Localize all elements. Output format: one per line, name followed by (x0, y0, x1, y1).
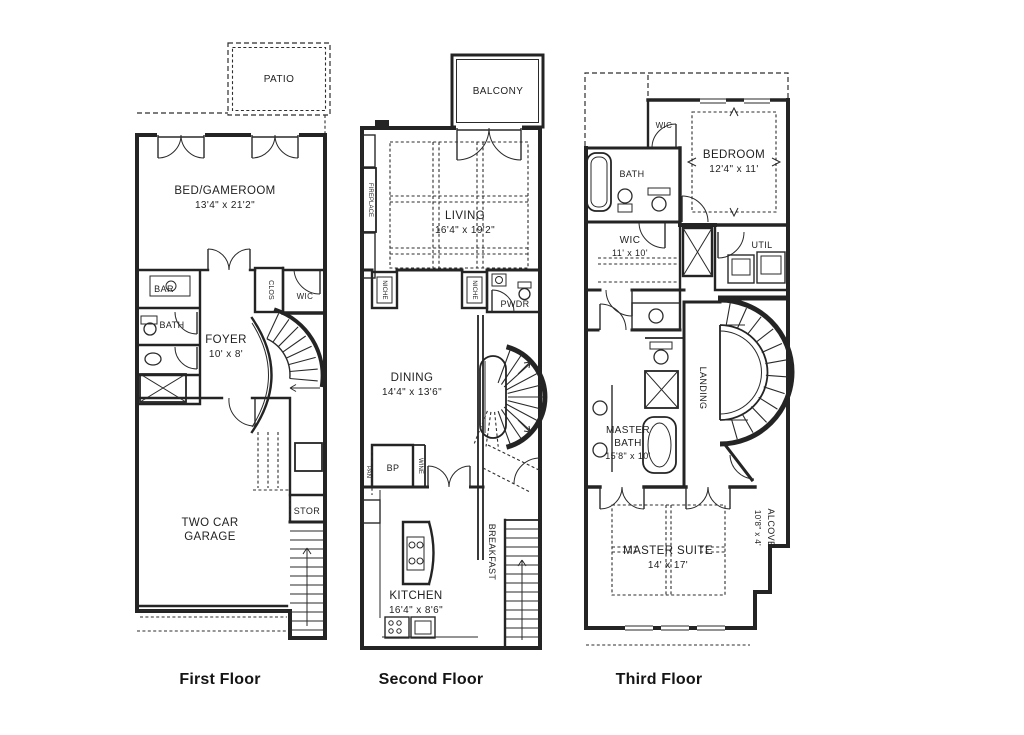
first-floor-straight-stair (290, 531, 325, 630)
wic-label-first: WIC (297, 292, 314, 301)
kitchen-dims: 16'4" x 8'6" (389, 605, 443, 616)
chimney (375, 120, 389, 129)
foyer-dims: 10' x 8' (209, 349, 243, 360)
first-floor-title: First Floor (179, 671, 260, 688)
third-floor-plan: WIC BATH BEDROOM 12'4" x 11' WIC 11' x 1… (585, 73, 792, 645)
second-floor-straight-stair (505, 520, 540, 648)
elevator (680, 225, 715, 276)
patio-label: PATIO (264, 74, 295, 85)
garage-label-line1: TWO CAR (181, 517, 238, 529)
third-floor-roof-dashes (585, 73, 788, 210)
clos-label: CLOS (267, 280, 274, 300)
foyer-label: FOYER (205, 334, 247, 346)
fireplace-label: FIREPLACE (367, 183, 373, 217)
niche-left-label: NICHE (381, 280, 387, 299)
second-floor-plan: BALCONY LIVING 16'4" x 19'2" FIREPLACE N… (362, 55, 545, 648)
third-floor-title: Third Floor (616, 671, 703, 688)
bed-gameroom-label: BED/GAMEROOM (174, 185, 275, 197)
second-floor-curved-stair (474, 315, 545, 560)
pwdr-label: PWDR (500, 299, 529, 309)
first-floor-patio (137, 43, 330, 133)
alcove-label: ALCOVE (766, 509, 776, 548)
third-bedroom (648, 97, 788, 225)
kitchen-label: KITCHEN (389, 590, 442, 602)
master-suite-label: MASTER SUITE (623, 545, 713, 557)
floor-plan-sheet: PATIO BED/GAMEROOM 13'4" x 21'2" BAR BAT… (0, 0, 1024, 735)
utility-room (715, 225, 788, 290)
third-bath-label: BATH (620, 169, 645, 179)
living-dims: 16'4" x 19'2" (435, 225, 495, 236)
bedroom-dims: 12'4" x 11' (709, 164, 758, 175)
first-floor-curved-stair (252, 310, 323, 432)
wic-main-dims: 11' x 10' (612, 248, 648, 258)
pan-label: PAN (365, 466, 371, 478)
second-floor-title: Second Floor (379, 671, 484, 688)
wine-label: WINE (417, 458, 423, 474)
dining-label: DINING (391, 372, 434, 384)
living-label: LIVING (445, 210, 485, 222)
first-floor-interior-walls (137, 268, 325, 522)
bar-label: BAR (154, 284, 174, 294)
foyer-bedroom-doors (208, 249, 250, 270)
first-floor-plan: PATIO BED/GAMEROOM 13'4" x 21'2" BAR BAT… (137, 43, 330, 638)
master-suite-dims: 14' x 17' (648, 560, 688, 571)
stor-label: STOR (294, 506, 321, 516)
living-ceiling-grid (390, 142, 528, 268)
balcony-label: BALCONY (473, 86, 524, 97)
landing-label: LANDING (698, 367, 708, 410)
dining-dims: 14'4" x 13'6" (382, 387, 442, 398)
bedroom-label: BEDROOM (703, 149, 765, 161)
wic-main-label: WIC (620, 235, 641, 246)
wic-upper-label: WIC (656, 121, 673, 130)
niche-right-label: NICHE (471, 280, 477, 299)
master-bath-label-line2: BATH (614, 438, 642, 449)
bed-gameroom-dims: 13'4" x 21'2" (195, 200, 255, 211)
alcove-dims: 10'8" x 4' (753, 510, 762, 546)
bath-label: BATH (160, 320, 185, 330)
floor-plan-drawing: PATIO BED/GAMEROOM 13'4" x 21'2" BAR BAT… (0, 0, 1024, 735)
bp-label: BP (387, 463, 400, 473)
garage-label-line2: GARAGE (184, 531, 236, 543)
kitchen-island (403, 522, 434, 584)
util-label: UTIL (751, 240, 772, 250)
master-bath-label-line1: MASTER (606, 425, 650, 436)
master-bath-dims: 15'8" x 10' (605, 451, 651, 461)
breakfast-label: BREAKFAST (487, 524, 497, 581)
